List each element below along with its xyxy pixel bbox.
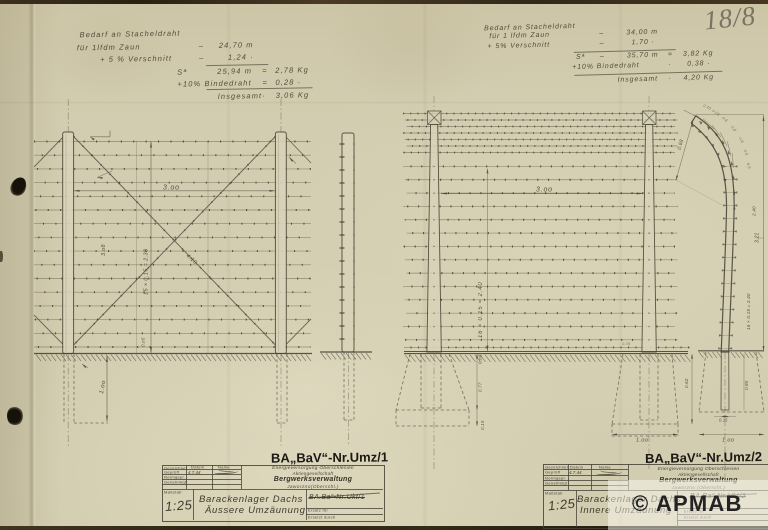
svg-text:3.o8: 3.o8	[101, 243, 107, 256]
svg-text:0.77: 0.77	[478, 382, 483, 392]
svg-text:3.oo: 3.oo	[536, 187, 553, 194]
svg-text:4.10: 4.10	[185, 253, 199, 266]
svg-text:o.6: o.6	[730, 125, 738, 133]
svg-text:3.oo: 3.oo	[163, 185, 180, 192]
svg-text:0.68: 0.68	[677, 139, 686, 151]
svg-text:o.6: o.6	[743, 149, 750, 157]
svg-text:0.15: 0.15	[719, 418, 728, 423]
svg-text:3.21: 3.21	[755, 232, 761, 243]
svg-text:o.6: o.6	[721, 115, 729, 123]
svg-text:1.oo: 1.oo	[99, 380, 107, 395]
svg-text:0.o8: 0.o8	[478, 354, 483, 364]
svg-text:o.6: o.6	[738, 136, 745, 144]
svg-text:1.oo: 1.oo	[636, 438, 648, 444]
svg-text:2.40: 2.40	[752, 206, 757, 217]
svg-text:16 × 0.15 = 2.40: 16 × 0.15 = 2.40	[746, 293, 751, 330]
svg-text:o.15: o.15	[711, 108, 721, 117]
svg-text:0.62: 0.62	[684, 378, 689, 388]
svg-text:0.15: 0.15	[480, 420, 485, 430]
svg-text:0.o5: 0.o5	[141, 337, 146, 347]
svg-text:0.36: 0.36	[622, 341, 631, 346]
svg-text:16 × 0.15 = 2.40: 16 × 0.15 = 2.40	[478, 281, 484, 338]
svg-text:o.5: o.5	[746, 162, 752, 169]
svg-text:1.oo: 1.oo	[722, 438, 734, 444]
svg-text:0.85: 0.85	[744, 380, 749, 390]
svg-text:15 × 0.15 = 2.38: 15 × 0.15 = 2.38	[144, 248, 150, 295]
